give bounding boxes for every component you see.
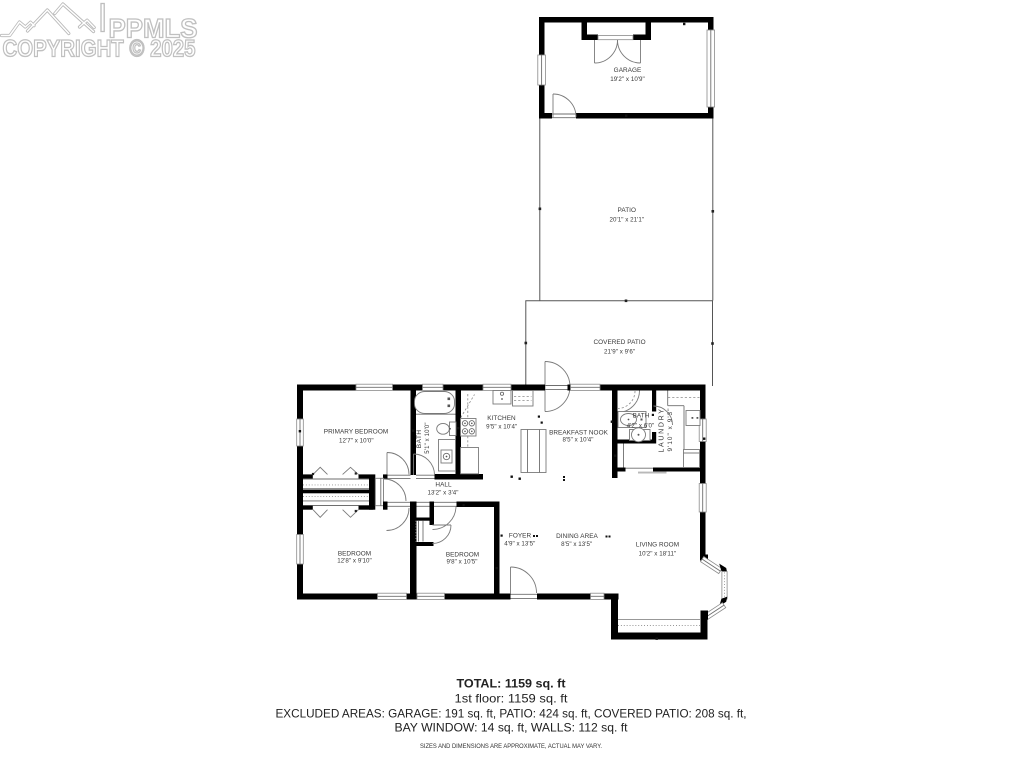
svg-text:BATH: BATH (416, 429, 423, 448)
svg-text:10'2" x 18'11": 10'2" x 18'11" (639, 550, 677, 557)
svg-text:9'10" x 9'3": 9'10" x 9'3" (667, 407, 674, 451)
svg-text:8'5" x 10'4": 8'5" x 10'4" (562, 436, 593, 443)
svg-text:BATH: BATH (633, 412, 650, 419)
svg-text:21'9" x 9'6": 21'9" x 9'6" (604, 349, 635, 356)
svg-text:13'2" x 3'4": 13'2" x 3'4" (427, 489, 458, 496)
svg-text:SIZES AND DIMENSIONS ARE APPRO: SIZES AND DIMENSIONS ARE APPROXIMATE, AC… (420, 743, 602, 750)
svg-text:12'7" x 10'0": 12'7" x 10'0" (339, 437, 374, 444)
svg-text:BEDROOM: BEDROOM (338, 550, 371, 557)
svg-text:TOTAL: 1159 sq. ft: TOTAL: 1159 sq. ft (457, 677, 566, 691)
svg-text:9'8" x 10'5": 9'8" x 10'5" (446, 559, 477, 566)
svg-text:HALL: HALL (435, 481, 452, 488)
svg-text:FOYER: FOYER (509, 532, 532, 539)
svg-text:12'8" x 9'10": 12'8" x 9'10" (337, 558, 372, 565)
svg-text:GARAGE: GARAGE (614, 67, 642, 74)
svg-text:LIVING ROOM: LIVING ROOM (636, 541, 679, 548)
svg-text:4'2" x 6'0": 4'2" x 6'0" (627, 422, 655, 429)
svg-text:PATIO: PATIO (618, 207, 636, 214)
svg-text:PRIMARY BEDROOM: PRIMARY BEDROOM (324, 428, 388, 435)
svg-text:EXCLUDED AREAS: GARAGE: 191 sq: EXCLUDED AREAS: GARAGE: 191 sq. ft, PATI… (276, 707, 747, 721)
svg-text:8'5" x 13'5": 8'5" x 13'5" (561, 541, 592, 548)
svg-text:BAY WINDOW: 14 sq. ft, WALLS:: BAY WINDOW: 14 sq. ft, WALLS: 112 sq. ft (395, 721, 629, 735)
svg-text:COVERED PATIO: COVERED PATIO (593, 339, 645, 346)
svg-text:4'9" x 13'5": 4'9" x 13'5" (504, 541, 535, 548)
svg-text:COPYRIGHT © 2025: COPYRIGHT © 2025 (3, 36, 196, 63)
svg-text:BEDROOM: BEDROOM (446, 551, 479, 558)
svg-text:5'1" x 10'0": 5'1" x 10'0" (425, 422, 431, 453)
svg-text:1st floor: 1159 sq. ft: 1st floor: 1159 sq. ft (455, 692, 569, 706)
svg-text:20'1" x 21'1": 20'1" x 21'1" (610, 216, 645, 223)
svg-text:19'2" x 10'9": 19'2" x 10'9" (610, 76, 645, 83)
svg-text:LAUNDRY: LAUNDRY (658, 407, 665, 452)
svg-text:DINING AREA: DINING AREA (556, 533, 598, 540)
svg-text:KITCHEN: KITCHEN (487, 415, 516, 422)
svg-text:9'5" x 10'4": 9'5" x 10'4" (486, 424, 517, 431)
